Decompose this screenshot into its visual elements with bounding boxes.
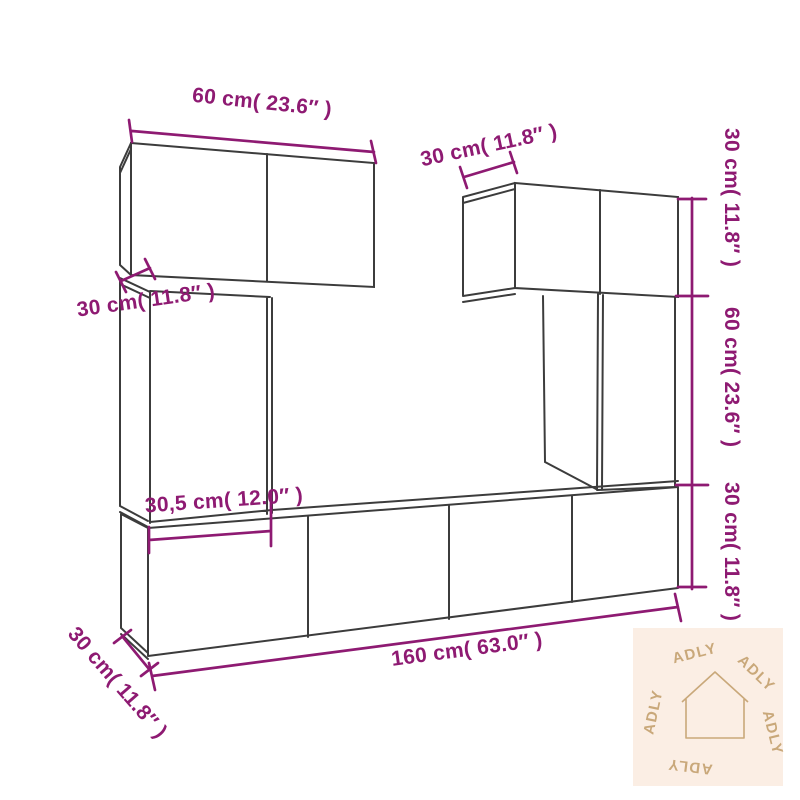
dim-line-total-width bbox=[149, 594, 681, 690]
tv-stand-door-dividers bbox=[308, 496, 572, 637]
tv-stand-side bbox=[121, 514, 148, 659]
upper-left-cabinet-front bbox=[131, 143, 374, 287]
upper-right-cabinet-front bbox=[515, 183, 678, 297]
hanging-right-cabinet bbox=[543, 294, 675, 490]
brand-watermark: ADLY ADLY ADLY ADLY ADLY bbox=[633, 628, 783, 786]
cabinet-outlines bbox=[120, 143, 678, 659]
dim-line-right-height-chain bbox=[676, 198, 708, 589]
dim-line-top-width bbox=[129, 120, 376, 163]
dimension-lines bbox=[114, 120, 708, 690]
upper-left-cabinet-side bbox=[120, 143, 131, 275]
furniture-dimension-diagram: 60 cm( 23.6″ ) 30 cm( 11.8″ ) 30 cm( 11.… bbox=[0, 0, 800, 800]
upper-right-cabinet-side bbox=[463, 183, 515, 302]
